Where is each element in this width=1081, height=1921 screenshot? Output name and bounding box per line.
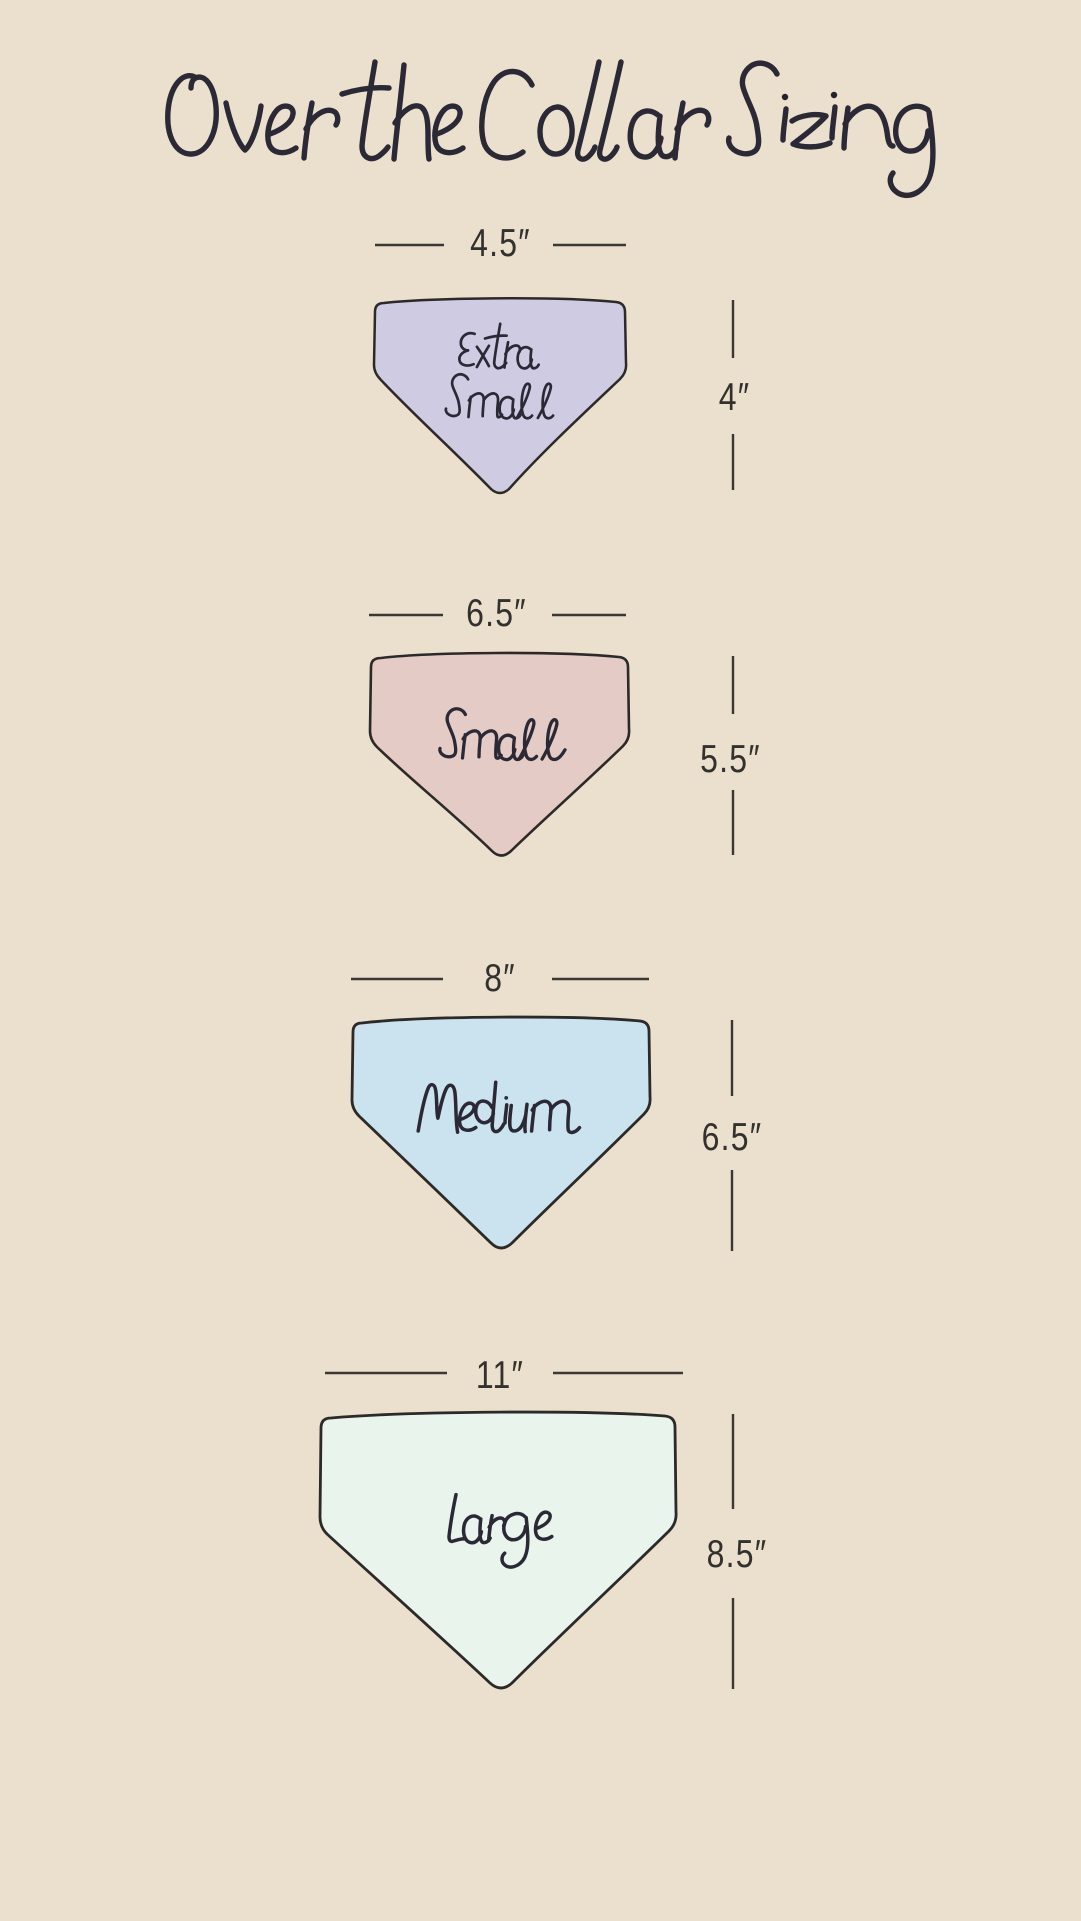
svg-text:6.5″: 6.5″ <box>702 1115 763 1159</box>
svg-text:4″: 4″ <box>719 375 751 419</box>
svg-text:5.5″: 5.5″ <box>700 737 761 781</box>
svg-text:4.5″: 4.5″ <box>470 221 531 265</box>
svg-text:6.5″: 6.5″ <box>466 591 527 635</box>
svg-text:11″: 11″ <box>476 1353 524 1397</box>
svg-text:8.5″: 8.5″ <box>707 1532 768 1576</box>
svg-text:8″: 8″ <box>484 956 516 1000</box>
